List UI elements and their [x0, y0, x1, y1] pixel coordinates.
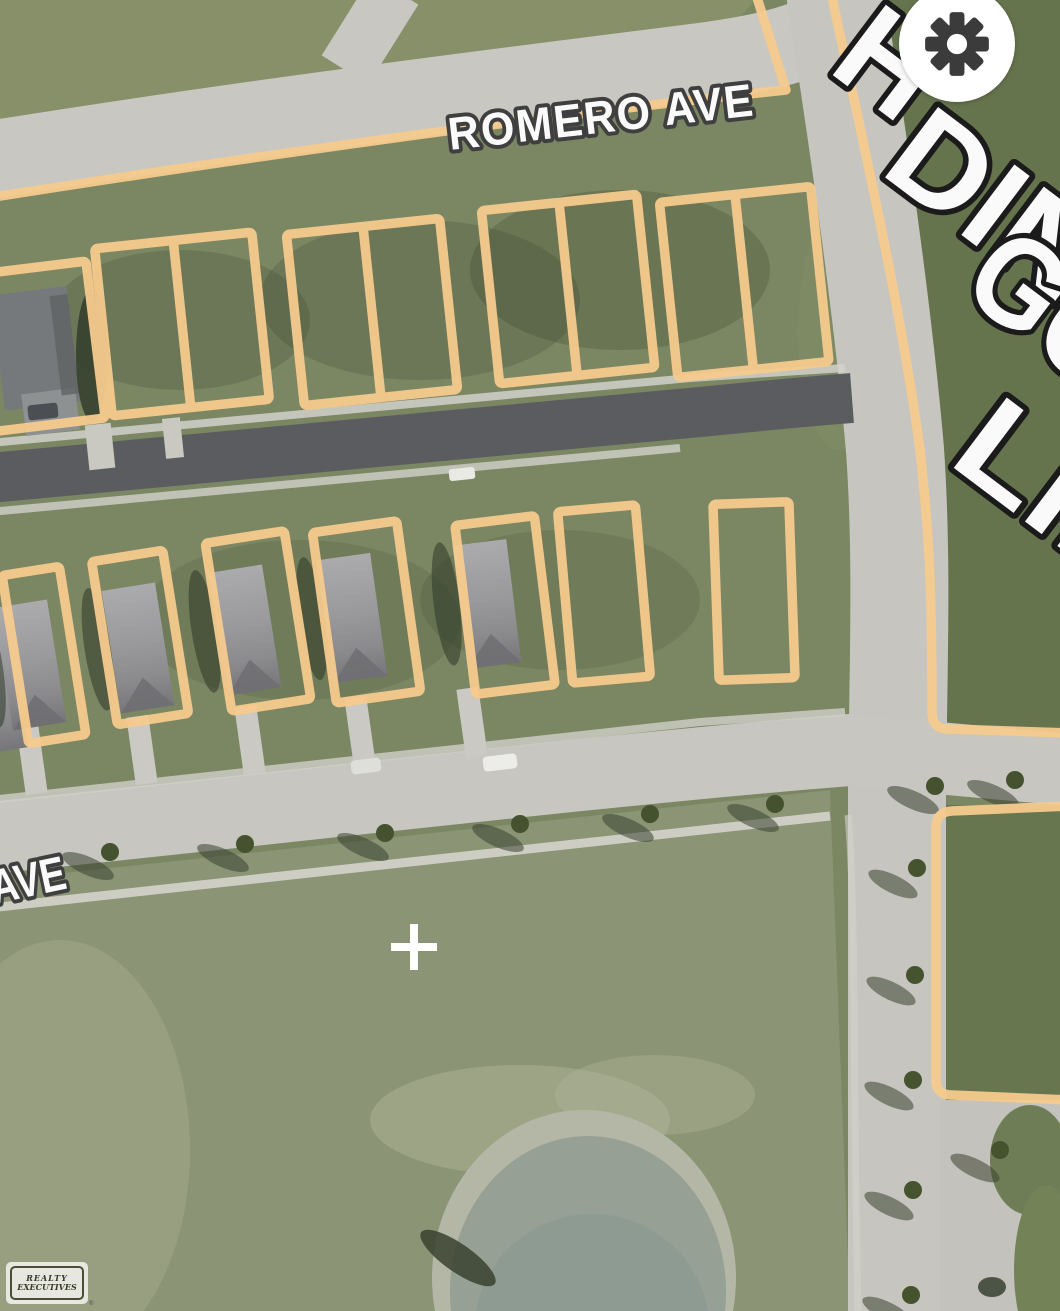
satellite-map-view[interactable]: ROMERO AVE AVE H DIN GO LIN REALTY EXECU… [0, 0, 1060, 1311]
aerial-imagery-layer: ROMERO AVE AVE H DIN GO LIN [0, 0, 1060, 1311]
watermark-frame: REALTY EXECUTIVES [10, 1266, 84, 1300]
grass-dark-mottle [470, 190, 770, 350]
registered-mark: ® [89, 1301, 93, 1307]
tree [978, 1277, 1006, 1297]
car [27, 402, 58, 420]
watermark-line2: EXECUTIVES [17, 1283, 77, 1292]
driveway [85, 423, 116, 470]
realty-executives-watermark: REALTY EXECUTIVES ® [6, 1262, 88, 1304]
grass-parcel-southeast [930, 805, 1060, 1105]
map-center-crosshair-icon [391, 924, 437, 970]
gear-icon [923, 10, 991, 78]
gear-center-hole [947, 34, 967, 54]
crosshair-vertical-bar [410, 924, 418, 970]
